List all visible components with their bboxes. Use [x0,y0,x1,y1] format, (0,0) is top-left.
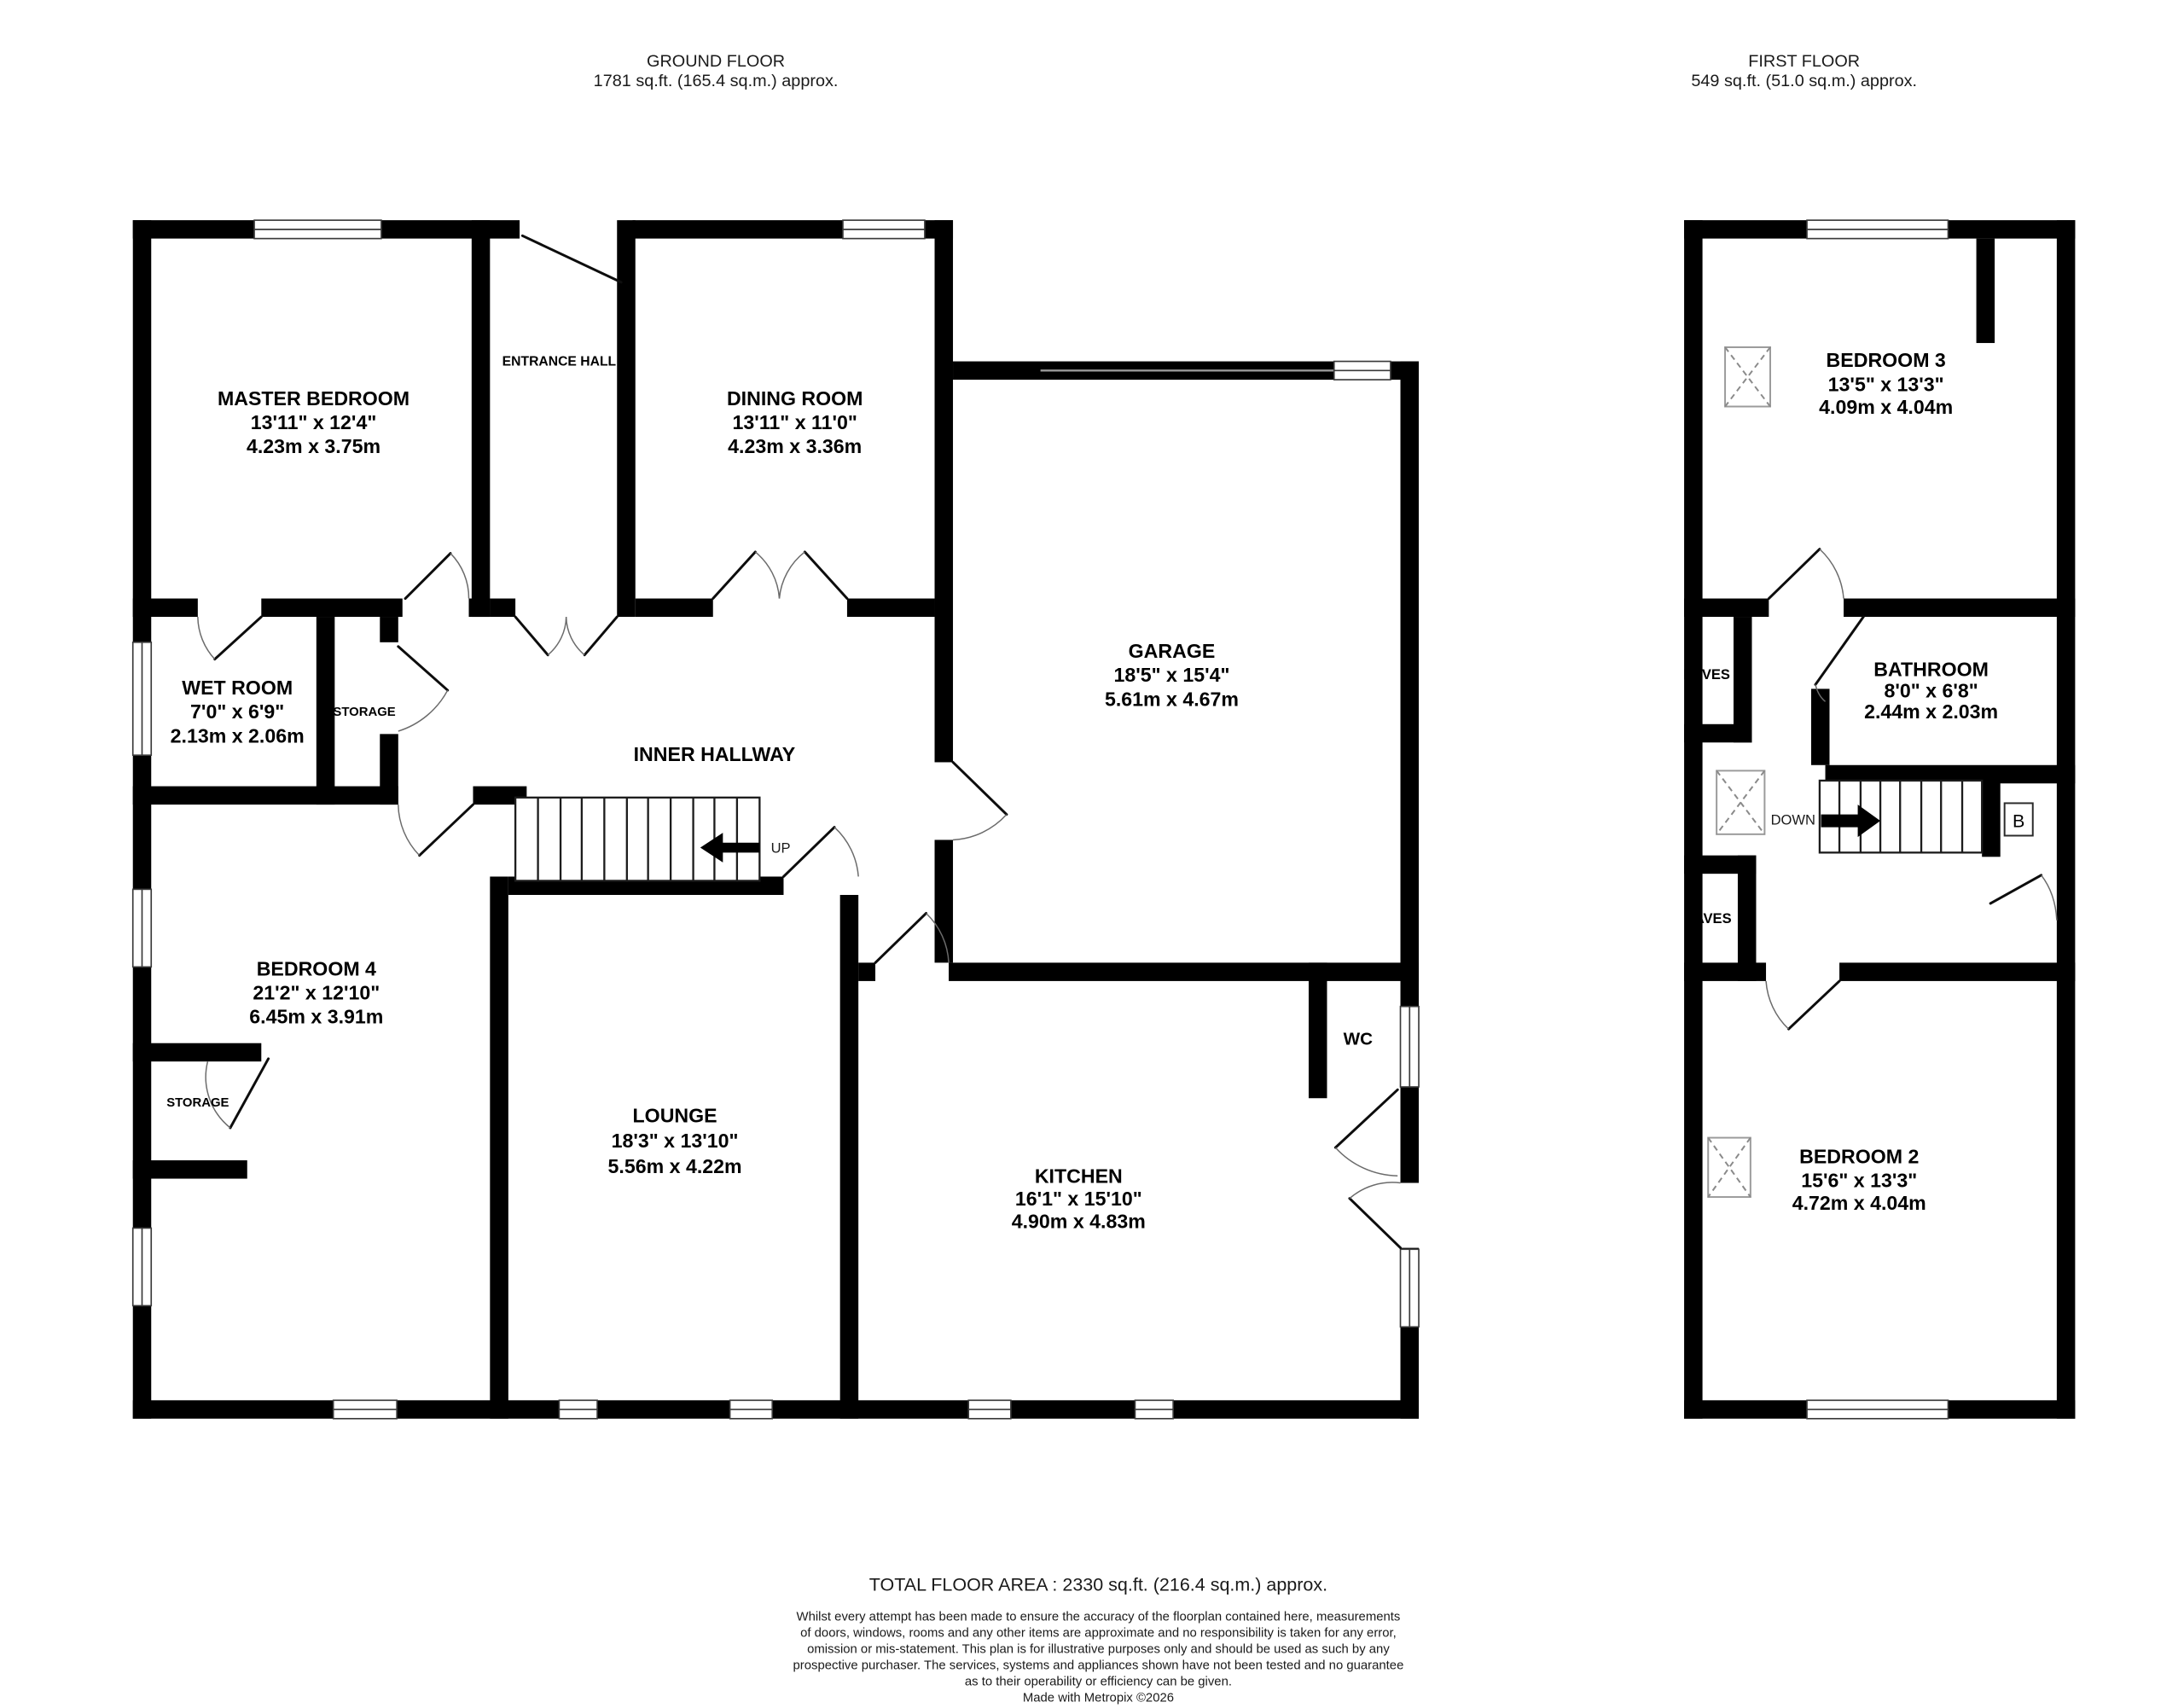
window [559,1400,597,1419]
door-arc [1815,617,1863,701]
label-storage-bottom: STORAGE [166,1096,229,1110]
room-dims-metric: 2.13m x 2.06m [171,724,305,747]
label-eaves-bottom: EAVES [1685,910,1732,927]
entrance-door [522,235,621,282]
window [730,1400,773,1419]
skylight-icon [1716,770,1764,834]
window [133,642,152,755]
window [968,1400,1011,1419]
room-dims-metric: 4.72m x 4.04m [1792,1192,1926,1214]
room-label-kitchen: KITCHEN [1035,1165,1123,1188]
window [1807,1400,1948,1419]
skylight-icon [1708,1138,1751,1197]
room-dims-metric: 4.23m x 3.36m [728,435,862,457]
skylight-icon [1725,347,1770,406]
room-dims-metric: 2.44m x 2.03m [1864,700,1998,723]
stairs-up [515,798,759,881]
window [133,1228,152,1305]
floorplan-canvas: GROUND FLOOR 1781 sq.ft. (165.4 sq.m.) a… [0,0,2184,1708]
room-dims-imperial: 13'11" x 11'0" [733,411,857,433]
ground-floor-title: GROUND FLOOR [647,52,785,71]
first-floor-title: FIRST FLOOR [1748,52,1860,71]
room-label-bathroom: BATHROOM [1873,659,1989,681]
footer: TOTAL FLOOR AREA : 2330 sq.ft. (216.4 sq… [793,1575,1404,1705]
boiler-label: B [2013,811,2024,832]
window [1401,1249,1420,1327]
door-arc [1769,549,1844,599]
first-floor-area: 549 sq.ft. (51.0 sq.m.) approx. [1691,72,1917,90]
room-dims-imperial: 13'11" x 12'4" [251,411,377,433]
door-arc [405,554,468,599]
stairs-down [1820,781,1982,852]
label-eaves-top: EAVES [1683,666,1730,683]
room-label-dining-room: DINING ROOM [727,387,863,410]
room-dims-imperial: 7'0" x 6'9" [190,700,284,723]
label-down: DOWN [1771,811,1815,828]
window [133,889,152,967]
disclaimer-line: of doors, windows, rooms and any other i… [800,1626,1397,1640]
door-arc [398,805,473,856]
room-dims-metric: 5.56m x 4.22m [608,1155,742,1177]
room-label-inner-hallway: INNER HALLWAY [634,743,796,765]
room-dims-imperial: 15'6" x 13'3" [1801,1169,1917,1191]
room-dims-metric: 4.90m x 4.83m [1012,1210,1146,1232]
room-label-master-bedroom: MASTER BEDROOM [218,387,409,410]
room-label-bedroom-2: BEDROOM 2 [1799,1145,1919,1167]
disclaimer-line: Whilst every attempt has been made to en… [797,1610,1401,1624]
window [1401,1007,1420,1087]
door-arc [1990,875,2057,921]
door-arc [198,617,261,659]
ground-floor-plan: MASTER BEDROOM 13'11" x 12'4" 4.23m x 3.… [133,220,1419,1419]
room-label-bedroom-3: BEDROOM 3 [1827,349,1946,371]
window [1135,1400,1173,1419]
room-dims-imperial: 18'3" x 13'10" [612,1130,739,1152]
door-arc [398,647,448,731]
window [254,220,381,239]
door-arc [953,762,1007,839]
total-floor-area: TOTAL FLOOR AREA : 2330 sq.ft. (216.4 sq… [869,1575,1327,1595]
boiler-badge: B [2005,803,2033,835]
label-storage-top: STORAGE [333,706,395,719]
door-arc [206,1059,268,1128]
window [843,220,925,239]
room-dims-metric: 6.45m x 3.91m [249,1006,383,1028]
room-label-lounge: LOUNGE [633,1104,717,1126]
room-dims-metric: 5.61m x 4.67m [1105,688,1239,710]
room-label-bedroom-4: BEDROOM 4 [257,957,376,979]
door-arc [713,552,847,599]
window [1334,362,1391,381]
door-arc [515,617,617,655]
disclaimer-line: omission or mis-statement. This plan is … [807,1642,1390,1656]
door-arc [1350,1182,1401,1248]
door-arc [1335,1089,1397,1176]
window [1807,220,1948,239]
ground-floor-area: 1781 sq.ft. (165.4 sq.m.) approx. [594,72,839,90]
credit-line: Made with Metropix ©2026 [1023,1692,1174,1705]
door-arc [1766,981,1839,1029]
room-dims-imperial: 13'5" x 13'3" [1828,373,1944,395]
room-dims-imperial: 16'1" x 15'10" [1015,1188,1142,1210]
door-arc [783,828,858,877]
room-dims-imperial: 18'5" x 15'4" [1113,664,1229,686]
disclaimer-line: as to their operability or efficiency ca… [965,1676,1232,1689]
room-dims-metric: 4.23m x 3.75m [247,435,380,457]
room-dims-metric: 4.09m x 4.04m [1819,396,1953,418]
room-label-entrance-hall: ENTRANCE HALL [502,355,617,369]
room-label-wc: WC [1344,1029,1374,1049]
room-label-garage: GARAGE [1129,640,1216,662]
first-floor-plan: B BEDROOM 3 13'5" x 13'3" 4.09m x 4.04m … [1683,220,2075,1419]
label-up: UP [771,839,791,856]
room-label-wet-room: WET ROOM [182,677,293,699]
disclaimer-line: prospective purchaser. The services, sys… [793,1659,1404,1673]
room-dims-imperial: 21'2" x 12'10" [253,981,380,1003]
window [334,1400,397,1419]
room-dims-imperial: 8'0" x 6'8" [1885,679,1978,701]
